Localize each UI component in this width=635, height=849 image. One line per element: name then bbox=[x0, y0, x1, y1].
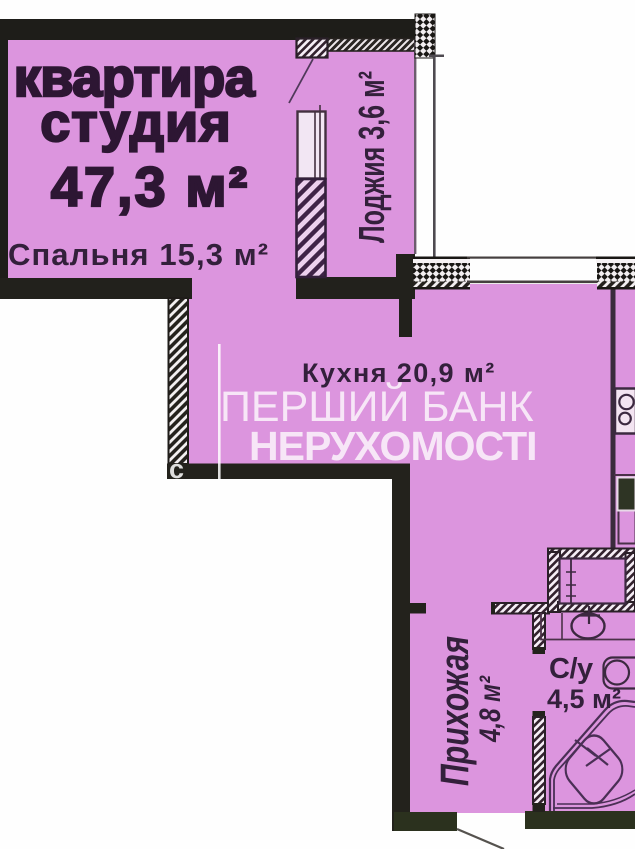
svg-text:Лоджия 3,6 м²: Лоджия 3,6 м² bbox=[351, 71, 392, 243]
svg-text:НЕРУХОМОСТІ: НЕРУХОМОСТІ bbox=[249, 423, 537, 469]
svg-text:Прихожая: Прихожая bbox=[433, 636, 477, 786]
svg-text:С/у: С/у bbox=[549, 653, 593, 685]
svg-text:Спальня 15,3 м²: Спальня 15,3 м² bbox=[8, 237, 269, 272]
svg-text:4,5 м²: 4,5 м² bbox=[547, 684, 621, 714]
svg-text:с: с bbox=[169, 454, 184, 484]
svg-text:4,8 м²: 4,8 м² bbox=[474, 675, 507, 743]
svg-text:студия: студия bbox=[40, 93, 232, 153]
svg-text:47,3 м²: 47,3 м² bbox=[51, 155, 250, 218]
